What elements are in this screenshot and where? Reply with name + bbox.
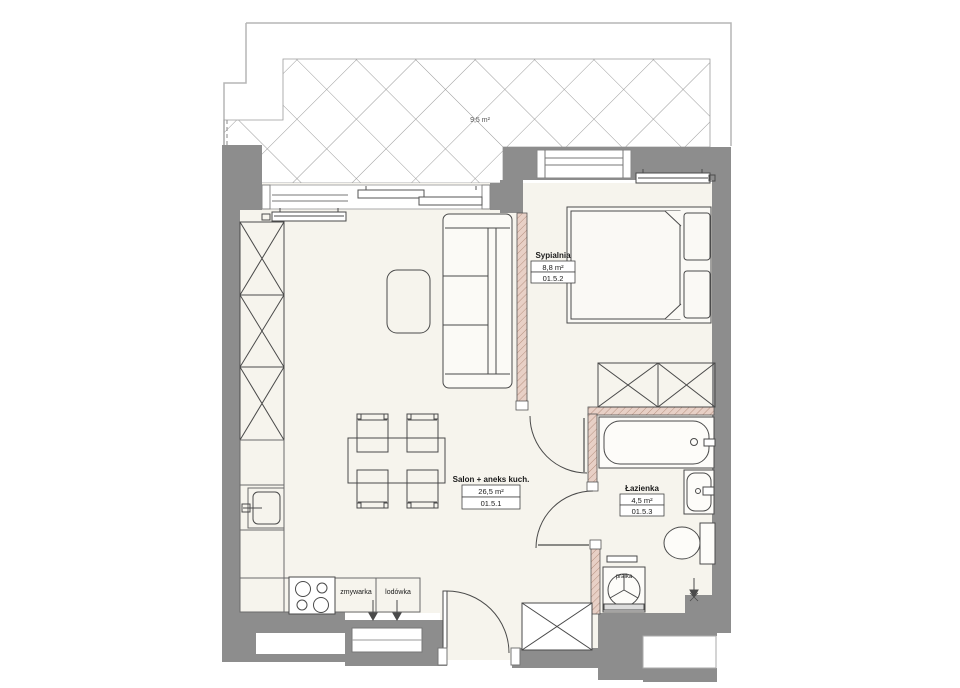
bathtub-icon [599, 417, 715, 468]
wall-bottom-right-upper [598, 613, 717, 636]
label-dishwasher: zmywarka [340, 589, 372, 596]
salon-terrace-glazing [262, 185, 490, 209]
room-name-sypialnia: Sypialnia [535, 251, 571, 260]
wall-bottom-ledge [240, 654, 345, 662]
floor-plan-drawing: 9,5 m² [0, 0, 960, 688]
window-jamb [262, 185, 270, 209]
wall-top-left-corner [222, 145, 262, 210]
sofa-icon [443, 214, 512, 388]
room-number-lazienka: 01.5.3 [632, 507, 653, 516]
sliding-door-panel [419, 197, 482, 205]
shaft-icon [522, 603, 592, 650]
wall-bottom-entry [512, 648, 605, 668]
washbasin-icon [684, 470, 714, 514]
partition-salon-bedroom [517, 213, 527, 403]
window-jamb [482, 185, 490, 209]
label-washer: pralka [616, 574, 633, 580]
wall-pier [500, 180, 523, 213]
room-name-salon: Salon + aneks kuch. [453, 475, 530, 484]
wall-salon-top-right [490, 183, 502, 210]
wall-left [222, 210, 240, 612]
wall-bottom-right-strip [643, 668, 717, 682]
tap-icon [703, 487, 714, 495]
partition-end-cap [590, 540, 601, 549]
door-jamb [511, 648, 520, 665]
room-area-sypialnia: 8,8 m² [542, 263, 564, 272]
door-leaf [443, 591, 447, 653]
terrace-area-label: 9,5 m² [470, 117, 491, 124]
wall-bottom-left [222, 612, 345, 633]
room-area-lazienka: 4,5 m² [631, 496, 653, 505]
room-number-salon: 01.5.1 [481, 499, 502, 508]
kitchen-window [352, 628, 422, 652]
wall-bottom-right-side [598, 636, 643, 680]
tap-icon [704, 439, 715, 446]
drain-arrow-icon [369, 613, 377, 620]
partition-bathroom-left-upper [588, 414, 597, 484]
label-sypialnia: Sypialnia 8,8 m² 01.5.2 [531, 251, 575, 283]
partition-end-cap [587, 482, 598, 491]
room-name-lazienka: Łazienka [625, 484, 659, 493]
label-fridge: lodówka [385, 589, 411, 596]
hob-icon [289, 577, 335, 614]
room-number-sypialnia: 01.5.2 [543, 274, 564, 283]
lower-opening [643, 636, 716, 668]
bed-icon [567, 207, 711, 323]
label-salon: Salon + aneks kuch. 26,5 m² 01.5.1 [453, 475, 530, 509]
drain-arrow-icon [393, 613, 401, 620]
partition-end-cap [516, 401, 528, 410]
sliding-door-panel [358, 190, 424, 198]
floor-plan: 9,5 m² [0, 0, 960, 688]
label-lazienka: Łazienka 4,5 m² 01.5.3 [620, 484, 664, 516]
room-area-salon: 26,5 m² [478, 487, 504, 496]
door-jamb [438, 648, 447, 665]
partition-bathroom-top [588, 407, 714, 415]
bedroom-window [537, 150, 631, 178]
